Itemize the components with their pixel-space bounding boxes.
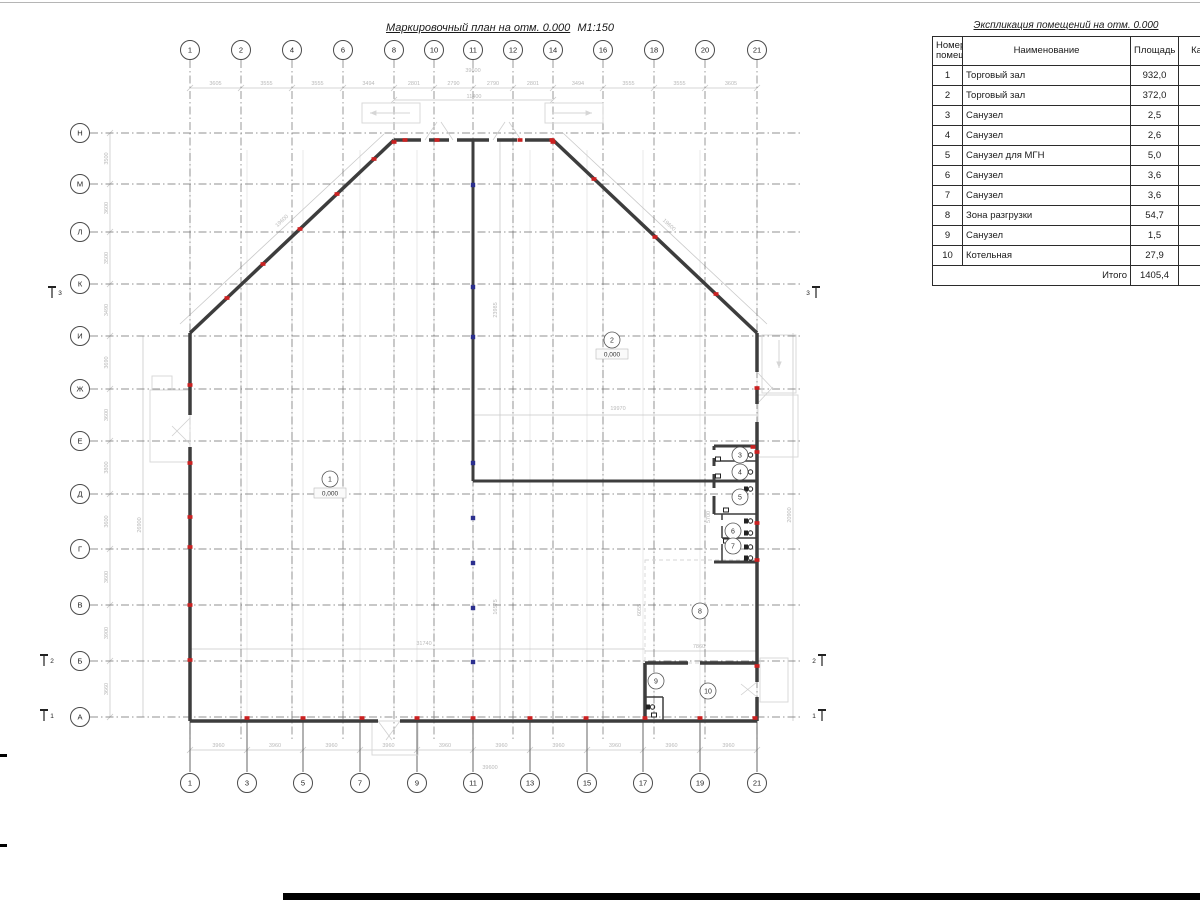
dim-label: 3960: [552, 743, 564, 749]
wall-marker-red: [188, 515, 193, 519]
wall-marker-red: [751, 445, 756, 449]
grid-bubble-label: Г: [78, 545, 82, 554]
column-marker-blue: [471, 606, 475, 610]
table-cell: 372,0: [1131, 86, 1179, 106]
grid-bubble-label: И: [77, 332, 82, 341]
grid-bubble-label: 11: [469, 779, 477, 788]
table-cell: 4: [933, 126, 963, 146]
table-cell: 1: [933, 66, 963, 86]
grid-bubble-label: Е: [77, 437, 82, 446]
table-row: 4Санузел2,6: [933, 126, 1200, 146]
wall-marker-red: [301, 716, 306, 720]
wall-marker-red: [372, 157, 377, 161]
sink-icon: [724, 508, 729, 512]
table-cell: [1179, 266, 1200, 286]
grid-bubble-label: А: [77, 713, 82, 722]
wall-marker-red: [755, 521, 760, 525]
table-cell: [1179, 66, 1200, 86]
toilet-icon: [748, 470, 752, 474]
door-swing: [741, 682, 757, 695]
grid-bubble-label: 10: [430, 46, 438, 55]
wall-marker-red: [245, 716, 250, 720]
dim-label: 3800: [104, 461, 110, 473]
dim-label: 3555: [673, 81, 685, 87]
dim-label: 3960: [665, 743, 677, 749]
ramp-outline: [760, 658, 788, 702]
grid-bubble-label: 6: [341, 46, 345, 55]
table-row: 9Санузел1,5: [933, 226, 1200, 246]
dim-label: 20900: [787, 507, 793, 522]
table-cell: 7: [933, 186, 963, 206]
scan-artifact-tick: [0, 844, 7, 847]
column-marker-blue: [471, 335, 475, 339]
dim-label: 3960: [269, 743, 281, 749]
door-swing: [172, 418, 190, 436]
room-number: 8: [698, 608, 702, 615]
grid-bubble-label: Ж: [77, 385, 84, 394]
table-cell: Торговый зал: [963, 86, 1131, 106]
dim-label: 3555: [622, 81, 634, 87]
table-cell: 10: [933, 246, 963, 266]
total-value: 1405,4: [1131, 266, 1179, 286]
grid-bubble-label: К: [78, 280, 83, 289]
table-cell: [1179, 166, 1200, 186]
room-number: 6: [731, 528, 735, 535]
dim-label: 3494: [572, 81, 584, 87]
wall-marker-red: [584, 716, 589, 720]
grid-bubble-label: 12: [509, 46, 517, 55]
grid-bubble-label: 2: [239, 46, 243, 55]
table-cell: 2: [933, 86, 963, 106]
grid-bubble-label: 17: [639, 779, 647, 788]
dim-label: 3600: [104, 515, 110, 527]
dim-label: 3900: [104, 627, 110, 639]
sink-icon: [716, 474, 721, 478]
toilet-icon: [748, 556, 752, 560]
room-number: 10: [704, 688, 712, 695]
elevation-label: 0,000: [322, 491, 339, 498]
dim-label: 2801: [527, 81, 539, 87]
dim-label: 3960: [382, 743, 394, 749]
dim-label: 3500: [104, 252, 110, 264]
table-cell: 3,6: [1131, 186, 1179, 206]
dim-label: 19600: [661, 218, 676, 233]
table-cell: Санузел: [963, 186, 1131, 206]
dim-label: 7860: [693, 644, 705, 650]
dim-label: 3605: [209, 81, 221, 87]
grid-bubble-label: 15: [583, 779, 591, 788]
dim-label: 2790: [447, 81, 459, 87]
room-number: 4: [738, 469, 742, 476]
table-cell: [1179, 226, 1200, 246]
table-cell: [1179, 206, 1200, 226]
column-marker-blue: [471, 285, 475, 289]
wall-marker-red: [755, 386, 760, 390]
grid-bubble-label: 1: [188, 779, 192, 788]
dim-label: 3494: [362, 81, 374, 87]
grid-bubble-label: 11: [469, 46, 477, 55]
table-cell: Санузел для МГН: [963, 146, 1131, 166]
toilet-icon: [748, 545, 752, 549]
dim-label: 3960: [212, 743, 224, 749]
dim-line-diagonal: [563, 133, 767, 324]
wall-marker-red: [415, 716, 420, 720]
wall-marker-red: [188, 383, 193, 387]
grid-bubble-label: 8: [392, 46, 396, 55]
dim-label: 19600: [275, 214, 290, 229]
dim-label: 3600: [104, 571, 110, 583]
door-swing: [425, 122, 437, 140]
side-vestibule: [152, 376, 172, 390]
table-cell: [1179, 186, 1200, 206]
dim-label: 3490: [104, 304, 110, 316]
column-marker-blue: [471, 561, 475, 565]
table-cell: Торговый зал: [963, 66, 1131, 86]
grid-bubble-label: 9: [415, 779, 419, 788]
grid-bubble-label: Н: [77, 129, 82, 138]
column-marker-blue: [471, 461, 475, 465]
dim-label: 11400: [467, 94, 482, 100]
table-cell: [1179, 246, 1200, 266]
section-number: 1: [812, 713, 816, 720]
table-cell: Санузел: [963, 166, 1131, 186]
table-cell: Санузел: [963, 106, 1131, 126]
table-cell: [1179, 106, 1200, 126]
column-marker-blue: [471, 183, 475, 187]
wall-marker-red: [714, 292, 719, 296]
table-cell: Санузел: [963, 226, 1131, 246]
grid-bubble-label: Б: [78, 657, 83, 666]
table-cell: 5,0: [1131, 146, 1179, 166]
table-cell: 2,5: [1131, 106, 1179, 126]
dim-label: 3605: [725, 81, 737, 87]
table-cell: 27,9: [1131, 246, 1179, 266]
dim-label-total: 39600: [482, 765, 497, 771]
grid-bubble-label: 3: [245, 779, 249, 788]
drawing-sheet: Маркировочный план на отм. 0.000 М1:150 …: [0, 0, 1200, 900]
door-swing: [441, 122, 453, 140]
wall-marker-red: [225, 296, 230, 300]
dim-label: 3660: [104, 683, 110, 695]
explication-title: Экспликация помещений на отм. 0.000: [932, 20, 1200, 31]
grid-bubble-label: В: [77, 601, 82, 610]
column-header-3: Кат. пом.: [1179, 37, 1200, 66]
toilet-icon: [748, 453, 752, 457]
table-cell: 3,6: [1131, 166, 1179, 186]
section-number: 3: [58, 290, 62, 297]
table-row: 10Котельная27,9: [933, 246, 1200, 266]
dim-label: 6055: [637, 604, 643, 616]
column-header-2: Площадь: [1131, 37, 1179, 66]
column-marker-blue: [471, 660, 475, 664]
table-cell: 9: [933, 226, 963, 246]
section-number: 2: [50, 658, 54, 665]
grid-bubble-label: Д: [77, 490, 82, 499]
table-row: 5Санузел для МГН5,0: [933, 146, 1200, 166]
sink-icon: [716, 457, 721, 461]
table-total-row: Итого1405,4: [933, 266, 1200, 286]
toilet-icon: [744, 531, 748, 536]
wall-marker-red: [261, 262, 266, 266]
total-label: Итого: [933, 266, 1131, 286]
table-row: 2Торговый зал372,0: [933, 86, 1200, 106]
entrance-arrow-head: [776, 362, 781, 368]
grid-bubble-label: 19: [696, 779, 704, 788]
grid-bubble-label: 18: [650, 46, 658, 55]
grid-bubble-label: 21: [753, 779, 761, 788]
dim-label: 3960: [722, 743, 734, 749]
section-number: 1: [50, 713, 54, 720]
table-cell: [1179, 86, 1200, 106]
wall-marker-red: [643, 716, 648, 720]
wall-marker-red: [551, 140, 556, 144]
table-cell: Котельная: [963, 246, 1131, 266]
toilet-icon: [744, 556, 748, 561]
grid-bubble-label: Л: [78, 228, 83, 237]
toilet-icon: [646, 705, 650, 710]
wall-marker-red: [403, 138, 408, 142]
table-cell: 5: [933, 146, 963, 166]
explication-panel: Экспликация помещений на отм. 0.000 Номе…: [932, 20, 1200, 286]
dim-label: 3555: [260, 81, 272, 87]
room-number: 5: [738, 494, 742, 501]
dim-label: 3960: [439, 743, 451, 749]
column-header-1: Наименование: [963, 37, 1131, 66]
table-cell: 1,5: [1131, 226, 1179, 246]
table-cell: 54,7: [1131, 206, 1179, 226]
wall-marker-red: [188, 461, 193, 465]
dim-label: 16575: [493, 599, 499, 614]
section-number: 3: [806, 290, 810, 297]
dim-label: 3555: [311, 81, 323, 87]
table-row: 3Санузел2,5: [933, 106, 1200, 126]
elevation-label: 0,000: [604, 352, 621, 359]
door-swing: [741, 684, 757, 697]
room-number: 7: [731, 543, 735, 550]
wall-marker-red: [392, 140, 397, 144]
section-number: 2: [812, 658, 816, 665]
grid-bubble-label: 21: [753, 46, 761, 55]
dim-label: 19970: [610, 406, 625, 412]
wall-marker-red: [435, 138, 440, 142]
dim-label: 3500: [104, 152, 110, 164]
grid-bubble-label: 5: [301, 779, 305, 788]
explication-table: Номер помещ.НаименованиеПлощадьКат. пом.…: [932, 36, 1200, 286]
room-number: 2: [610, 337, 614, 344]
dim-label: 3960: [609, 743, 621, 749]
wall-marker-red: [755, 450, 760, 454]
sink-icon: [652, 713, 657, 717]
table-cell: 3: [933, 106, 963, 126]
scan-artifact-bar: [283, 893, 1200, 900]
toilet-icon: [744, 519, 748, 524]
dim-label: 3600: [104, 409, 110, 421]
wall-marker-red: [753, 716, 758, 720]
table-cell: [1179, 146, 1200, 166]
table-cell: [1179, 126, 1200, 146]
wall-marker-red: [653, 235, 658, 239]
wall-marker-red: [755, 664, 760, 668]
wall-marker-red: [360, 716, 365, 720]
dim-label: 3960: [325, 743, 337, 749]
wall-marker-red: [592, 177, 597, 181]
dim-label: 3960: [495, 743, 507, 749]
table-cell: 8: [933, 206, 963, 226]
dim-line-diagonal: [180, 134, 384, 324]
table-cell: Санузел: [963, 126, 1131, 146]
room-number: 3: [738, 452, 742, 459]
wall-marker-red: [188, 603, 193, 607]
grid-bubble-label: 14: [549, 46, 557, 55]
wall-marker-red: [188, 545, 193, 549]
wall-marker-red: [471, 716, 476, 720]
wall-marker-red: [698, 716, 703, 720]
grid-bubble-label: 1: [188, 46, 192, 55]
grid-bubble-label: 16: [599, 46, 607, 55]
wall-marker-red: [188, 658, 193, 662]
side-vestibule: [150, 390, 190, 462]
ramp-outline: [758, 395, 798, 457]
scan-artifact-tick: [0, 754, 7, 757]
door-swing: [378, 721, 392, 740]
dim-label: 2790: [487, 81, 499, 87]
dim-label: 23985: [493, 302, 499, 317]
dim-label: 26900: [137, 517, 143, 532]
column-header-0: Номер помещ.: [933, 37, 963, 66]
wall-marker-red: [528, 716, 533, 720]
toilet-icon: [744, 545, 748, 550]
grid-bubble-label: 20: [701, 46, 709, 55]
room-number: 1: [328, 476, 332, 483]
table-row: 1Торговый зал932,0: [933, 66, 1200, 86]
door-swing: [386, 721, 400, 740]
room-number: 9: [654, 678, 658, 685]
table-cell: 2,6: [1131, 126, 1179, 146]
wall-marker-red: [335, 192, 340, 196]
entrance-arrow-head: [586, 110, 592, 115]
dim-label: 5700: [706, 511, 712, 523]
table-cell: 6: [933, 166, 963, 186]
grid-bubble-label: 13: [526, 779, 534, 788]
dim-label: 3600: [104, 202, 110, 214]
table-row: 6Санузел3,6: [933, 166, 1200, 186]
dim-label: 3690: [104, 356, 110, 368]
table-row: 7Санузел3,6: [933, 186, 1200, 206]
grid-bubble-label: 7: [358, 779, 362, 788]
dim-label: 31740: [416, 641, 431, 647]
wall-marker-red: [298, 227, 303, 231]
table-cell: 932,0: [1131, 66, 1179, 86]
door-swing: [493, 122, 505, 140]
grid-bubble-label: 4: [290, 46, 294, 55]
door-swing: [509, 122, 521, 140]
table-row: 8Зона разгрузки54,7: [933, 206, 1200, 226]
toilet-icon: [748, 531, 752, 535]
wall-marker-red: [755, 558, 760, 562]
grid-bubble-label: М: [77, 180, 83, 189]
dim-label: 2801: [408, 81, 420, 87]
entrance-arrow-head: [370, 110, 376, 115]
table-header-row: Номер помещ.НаименованиеПлощадьКат. пом.: [933, 37, 1200, 66]
table-cell: Зона разгрузки: [963, 206, 1131, 226]
toilet-icon: [748, 487, 752, 491]
toilet-icon: [748, 519, 752, 523]
column-marker-blue: [471, 516, 475, 520]
wall-marker-red: [518, 138, 523, 142]
